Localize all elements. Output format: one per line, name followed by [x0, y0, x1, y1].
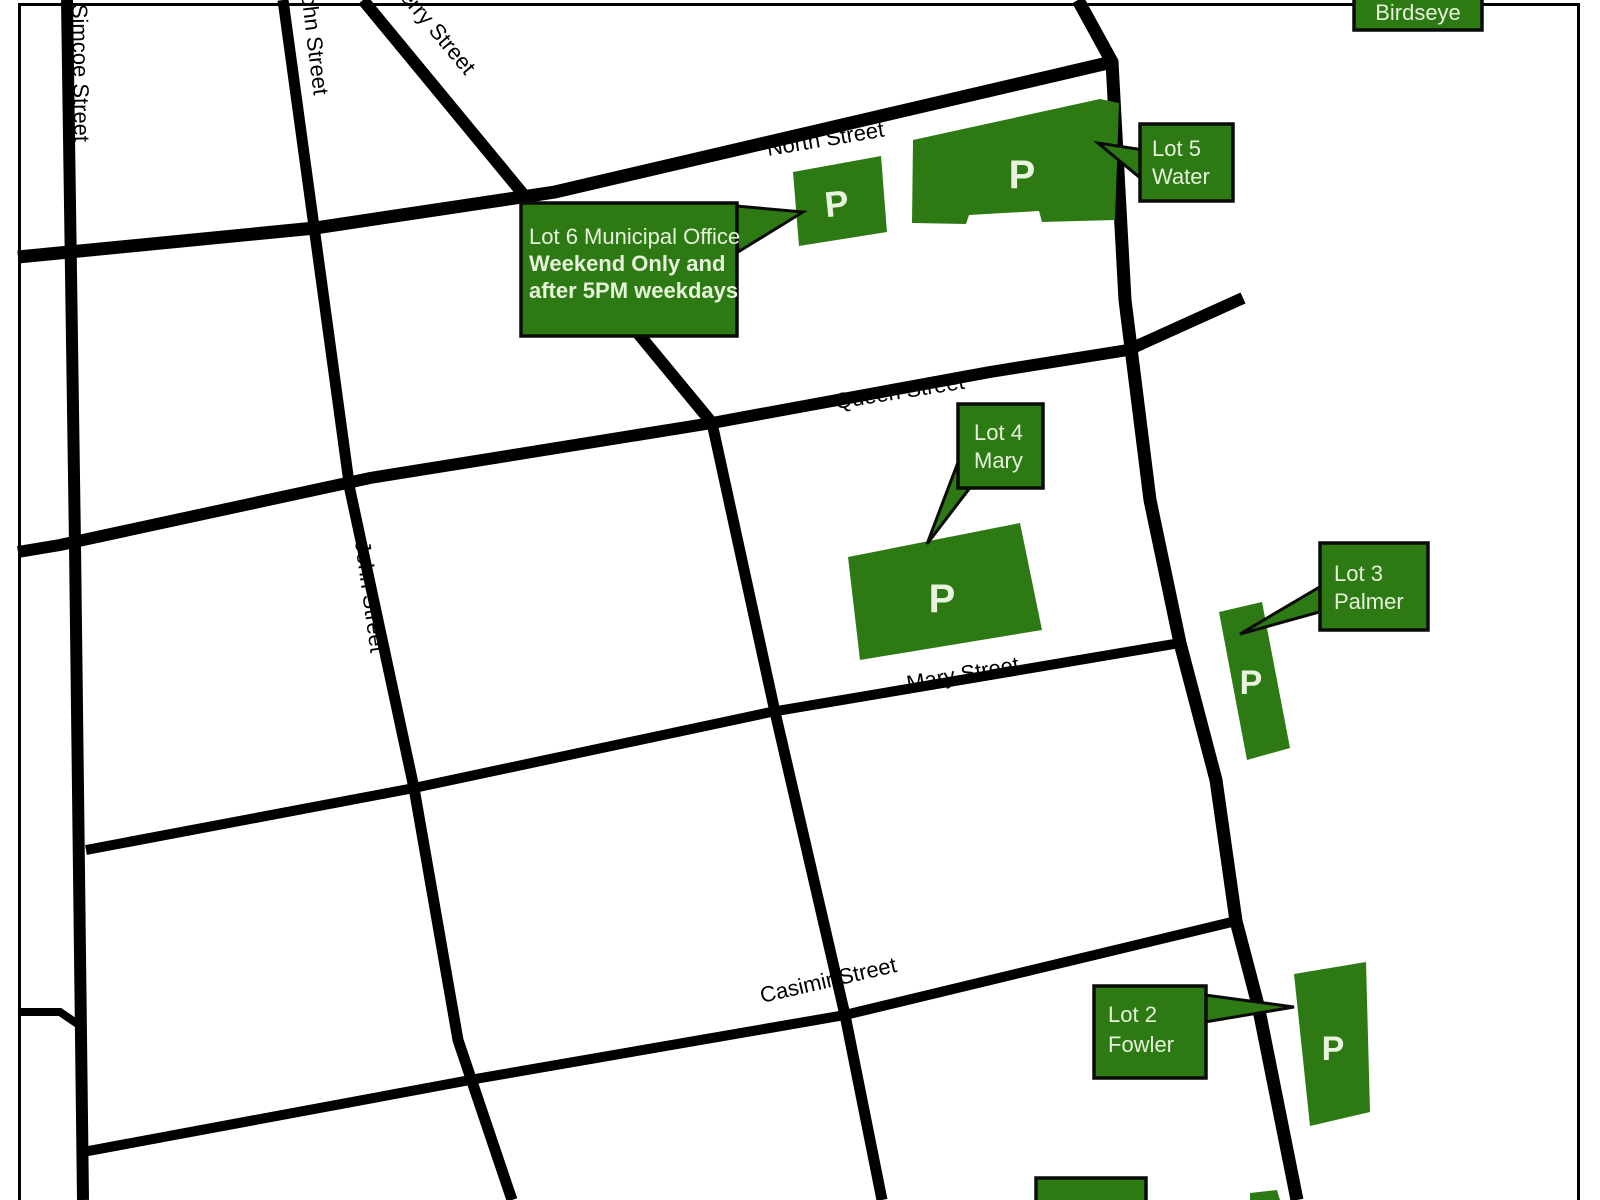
road-john-street	[283, 0, 512, 1200]
callout-lot-5-line1: Lot 5	[1152, 136, 1201, 161]
parking-lots-layer: P P P P P	[793, 99, 1370, 1200]
parking-p-icon: P	[1240, 664, 1263, 702]
callout-lot-6-pointer	[736, 206, 803, 252]
callout-lot-6-line2: Weekend Only and	[529, 251, 725, 276]
parking-map: P P P P P Lot 6 Municipal Office Weekend…	[0, 0, 1600, 1200]
street-label-john: John Street	[350, 539, 390, 654]
callout-lot-6-line3: after 5PM weekdays	[529, 278, 738, 303]
parking-p-icon: P	[1322, 1030, 1345, 1068]
callout-lot-5-line2: Water	[1152, 164, 1210, 189]
map-canvas: P P P P P Lot 6 Municipal Office Weekend…	[0, 0, 1600, 1200]
callout-lot-6-line1: Lot 6 Municipal Office	[529, 224, 740, 249]
road-middle-street	[712, 423, 882, 1200]
parking-p-icon: P	[1009, 153, 1036, 197]
street-label-john-top: John Street	[295, 0, 334, 96]
callout-lot-4-line2: Mary	[974, 448, 1023, 473]
parking-lot-1-area-partial	[1250, 1190, 1280, 1200]
street-label-queen: Queen Street	[833, 369, 966, 414]
callout-lot-2-pointer	[1205, 995, 1294, 1022]
callout-lot-2-line1: Lot 2	[1108, 1002, 1157, 1027]
callout-lot-6: Lot 6 Municipal Office Weekend Only and …	[521, 203, 803, 336]
callout-lot-4: Lot 4 Mary	[927, 404, 1043, 544]
street-label-mary: Mary Street	[905, 652, 1021, 696]
callout-lot-2-line2: Fowler	[1108, 1032, 1174, 1057]
street-labels-layer: Simcoe Street John Street John Street Pe…	[67, 0, 1021, 1008]
road-west-side-stub	[18, 1012, 79, 1025]
callout-lot-4-box	[958, 404, 1043, 488]
callout-lot-4-line1: Lot 4	[974, 420, 1023, 445]
callout-lot-3-box	[1320, 543, 1428, 630]
callout-lot-3-line2: Palmer	[1334, 589, 1404, 614]
birdseye-button-label[interactable]: Birdseye	[1375, 0, 1461, 25]
birdseye-button[interactable]: Birdseye	[1354, 0, 1482, 30]
road-casimir-street	[83, 921, 1236, 1152]
parking-p-icon: P	[823, 182, 851, 225]
street-label-simcoe: Simcoe Street	[67, 4, 94, 143]
callout-lot-3: Lot 3 Palmer	[1240, 543, 1428, 634]
callout-lot-1-box-partial	[1036, 1178, 1146, 1200]
parking-p-icon: P	[929, 577, 956, 621]
callout-lot-3-line1: Lot 3	[1334, 561, 1383, 586]
